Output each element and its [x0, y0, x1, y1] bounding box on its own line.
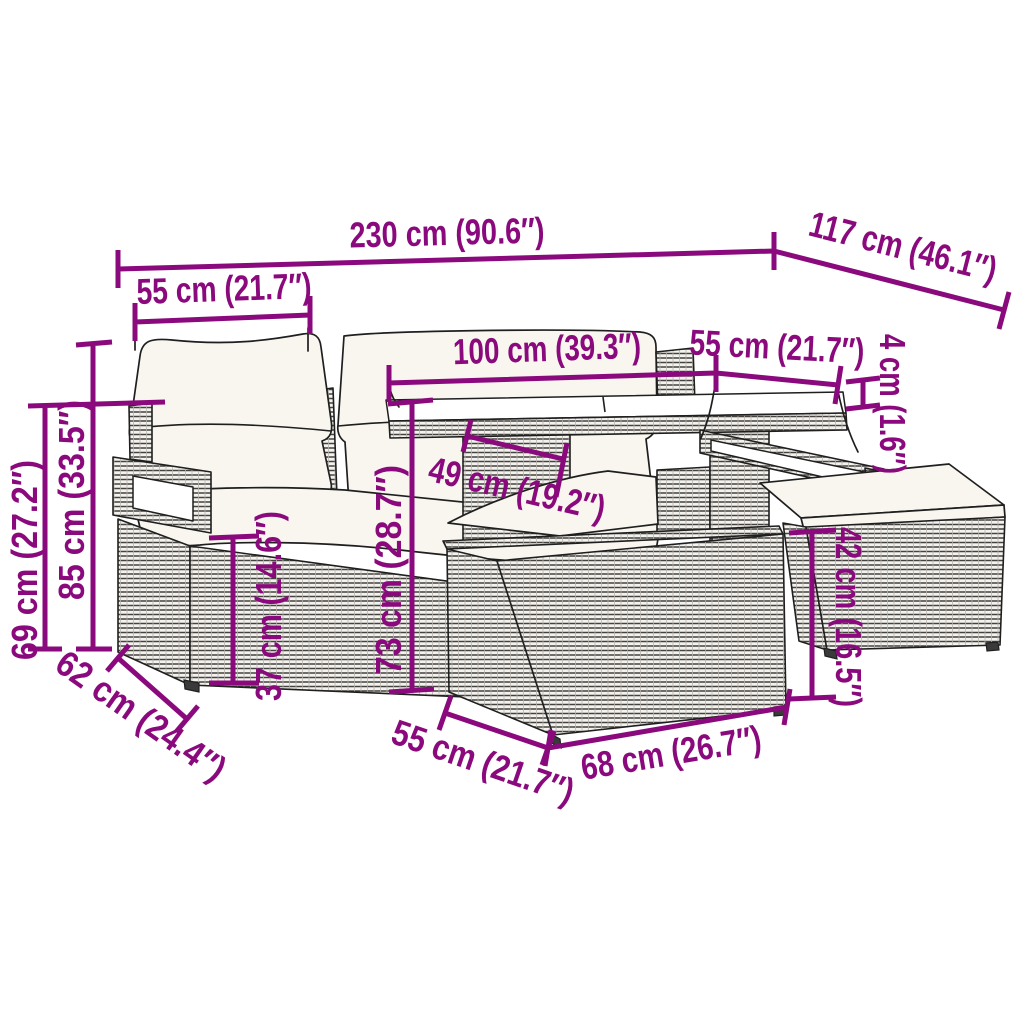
armrest-rear-post	[129, 403, 152, 462]
dimension-diagram: 230 cm (90.6″) 117 cm (46.1″) 55 cm (21.…	[0, 0, 1024, 1024]
dim-total-depth: 117 cm (46.1″)	[774, 203, 1009, 329]
stool-right	[760, 464, 1005, 659]
table-height-label: 73 cm (28.7″)	[368, 465, 409, 675]
left-seat-width-label: 55 cm (21.7″)	[136, 265, 312, 312]
dim-left-seat-width: 55 cm (21.7″)	[135, 265, 312, 341]
stool-height-label: 42 cm (16.5″)	[828, 527, 869, 707]
armrest-height-label: 69 cm (27.2″)	[4, 460, 45, 660]
stool-right-foot-2	[986, 642, 999, 651]
sofa-base-side	[118, 519, 190, 685]
seat-height-label: 37 cm (14.6″)	[248, 511, 289, 701]
diagram-canvas: 230 cm (90.6″) 117 cm (46.1″) 55 cm (21.…	[0, 0, 1024, 1024]
table-width-label: 100 cm (39.3″)	[452, 325, 641, 373]
backrest-height-label: 85 cm (33.5″)	[51, 400, 92, 600]
table-corner-block	[657, 467, 710, 537]
total-depth-label: 117 cm (46.1″)	[805, 203, 1001, 290]
total-width-label: 230 cm (90.6″)	[349, 209, 545, 255]
dim-backrest-height: 85 cm (33.5″)	[51, 342, 112, 649]
tabletop-thickness-label: 4 cm (1.6″)	[872, 334, 913, 474]
